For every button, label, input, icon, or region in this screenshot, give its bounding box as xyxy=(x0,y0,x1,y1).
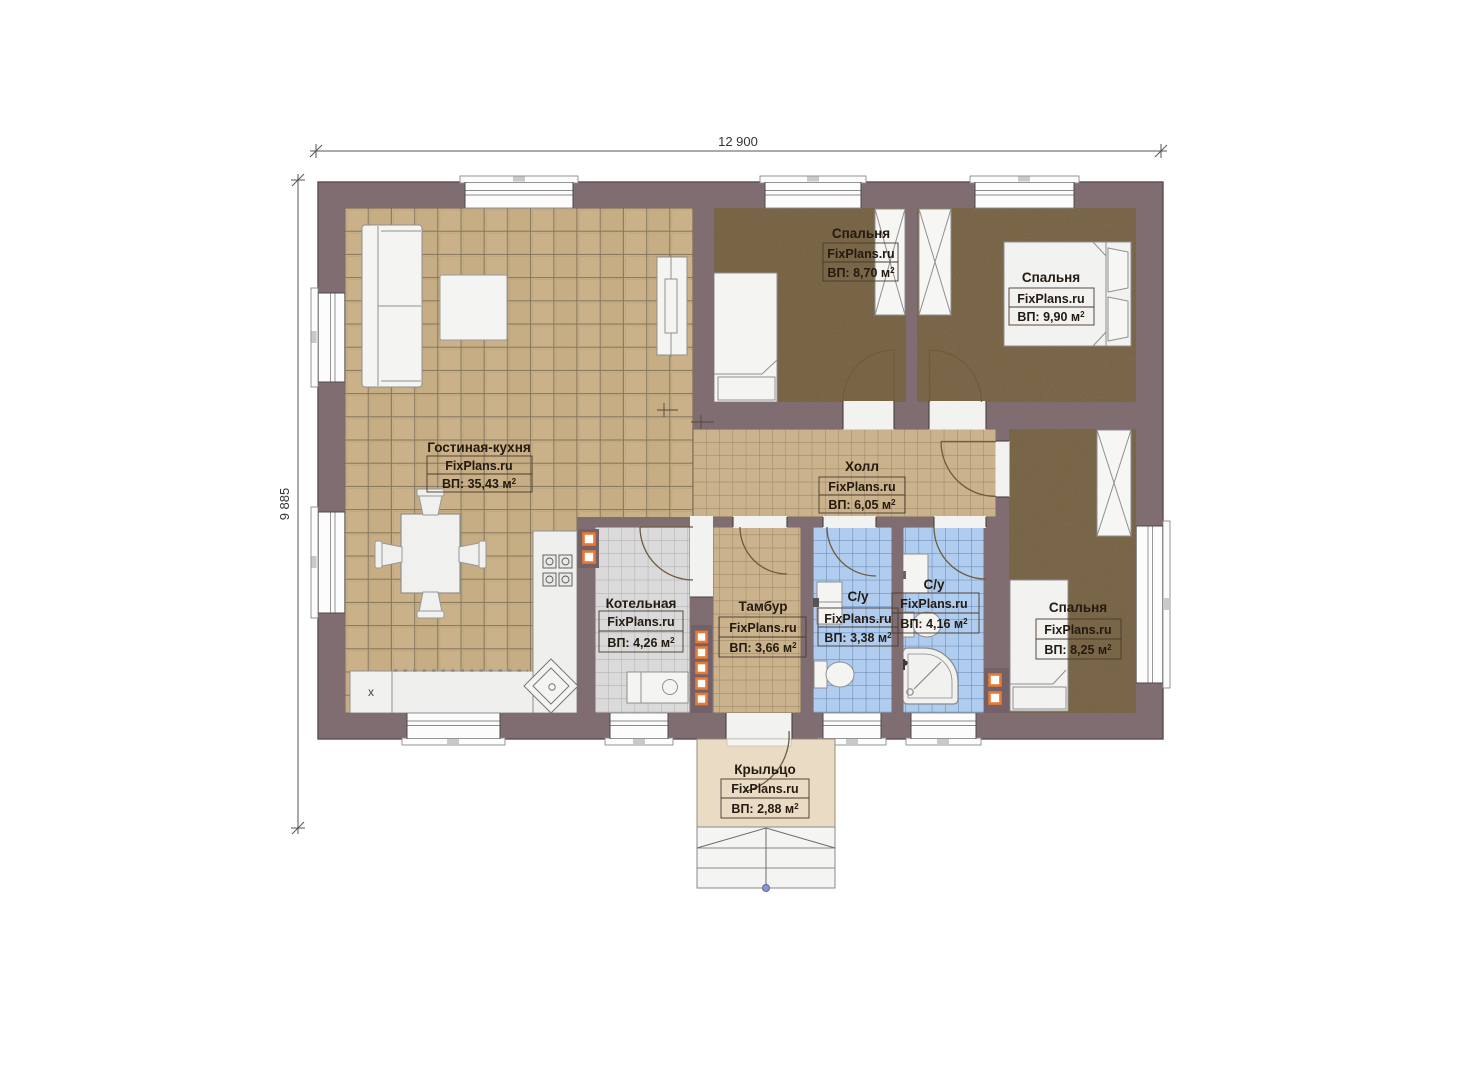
svg-text:FixPlans.ru: FixPlans.ru xyxy=(827,247,894,261)
svg-text:Котельная: Котельная xyxy=(606,596,677,611)
svg-text:FixPlans.ru: FixPlans.ru xyxy=(731,782,798,796)
svg-text:ВП: 9,90 м2: ВП: 9,90 м2 xyxy=(1017,310,1085,324)
svg-text:FixPlans.ru: FixPlans.ru xyxy=(1017,292,1084,306)
svg-text:FixPlans.ru: FixPlans.ru xyxy=(445,459,512,473)
svg-text:FixPlans.ru: FixPlans.ru xyxy=(828,480,895,494)
svg-text:С/у: С/у xyxy=(923,577,945,592)
svg-text:Спальня: Спальня xyxy=(832,226,890,241)
svg-text:Холл: Холл xyxy=(845,459,879,474)
svg-text:FixPlans.ru: FixPlans.ru xyxy=(900,597,967,611)
svg-text:FixPlans.ru: FixPlans.ru xyxy=(824,612,891,626)
svg-text:Крыльцо: Крыльцо xyxy=(734,762,795,777)
svg-text:ВП: 35,43 м2: ВП: 35,43 м2 xyxy=(442,477,517,491)
svg-text:Тамбур: Тамбур xyxy=(739,599,788,614)
svg-text:ВП: 8,25 м2: ВП: 8,25 м2 xyxy=(1044,643,1112,657)
svg-text:ВП: 6,05 м2: ВП: 6,05 м2 xyxy=(828,498,896,512)
svg-text:С/у: С/у xyxy=(847,589,869,604)
svg-text:FixPlans.ru: FixPlans.ru xyxy=(729,621,796,635)
svg-text:9 885: 9 885 xyxy=(277,488,292,521)
svg-text:ВП: 4,26 м2: ВП: 4,26 м2 xyxy=(607,636,675,650)
svg-text:ВП: 3,38 м2: ВП: 3,38 м2 xyxy=(824,631,892,645)
svg-text:ВП: 4,16 м2: ВП: 4,16 м2 xyxy=(900,617,968,631)
svg-text:ВП: 3,66 м2: ВП: 3,66 м2 xyxy=(729,641,797,655)
svg-text:Спальня: Спальня xyxy=(1022,270,1080,285)
svg-text:FixPlans.ru: FixPlans.ru xyxy=(1044,623,1111,637)
svg-text:FixPlans.ru: FixPlans.ru xyxy=(607,615,674,629)
svg-text:12 900: 12 900 xyxy=(718,134,758,149)
svg-text:Спальня: Спальня xyxy=(1049,600,1107,615)
svg-text:ВП: 8,70 м2: ВП: 8,70 м2 xyxy=(827,266,895,280)
svg-text:ВП: 2,88 м2: ВП: 2,88 м2 xyxy=(731,802,799,816)
svg-text:x: x xyxy=(368,685,374,699)
svg-text:Гостиная-кухня: Гостиная-кухня xyxy=(427,440,530,455)
